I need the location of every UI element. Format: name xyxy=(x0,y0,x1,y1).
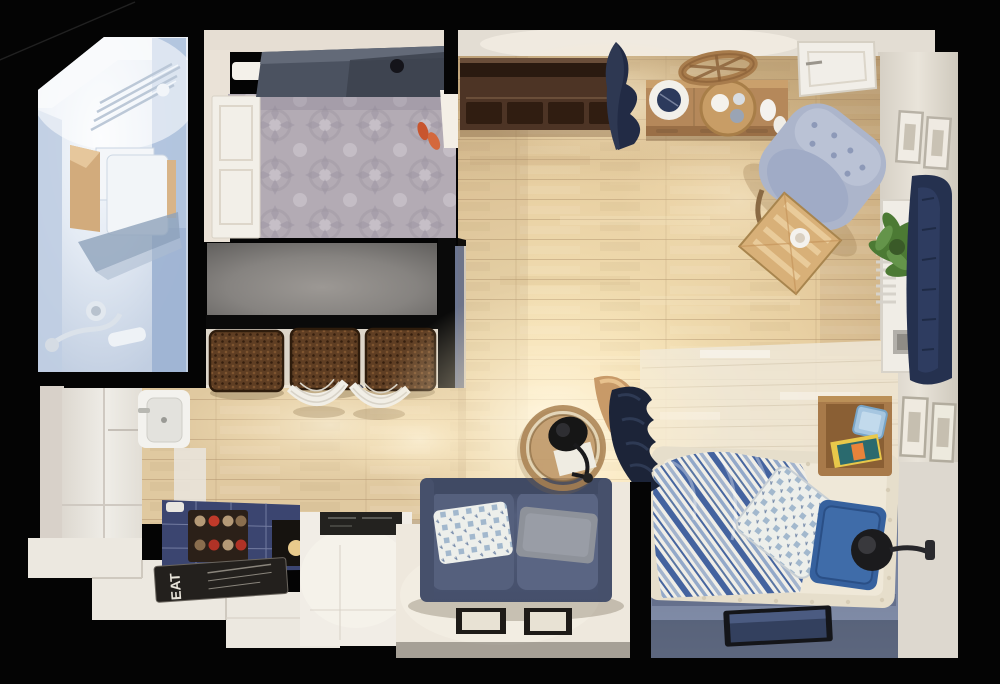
svg-text:EAT: EAT xyxy=(166,572,184,600)
